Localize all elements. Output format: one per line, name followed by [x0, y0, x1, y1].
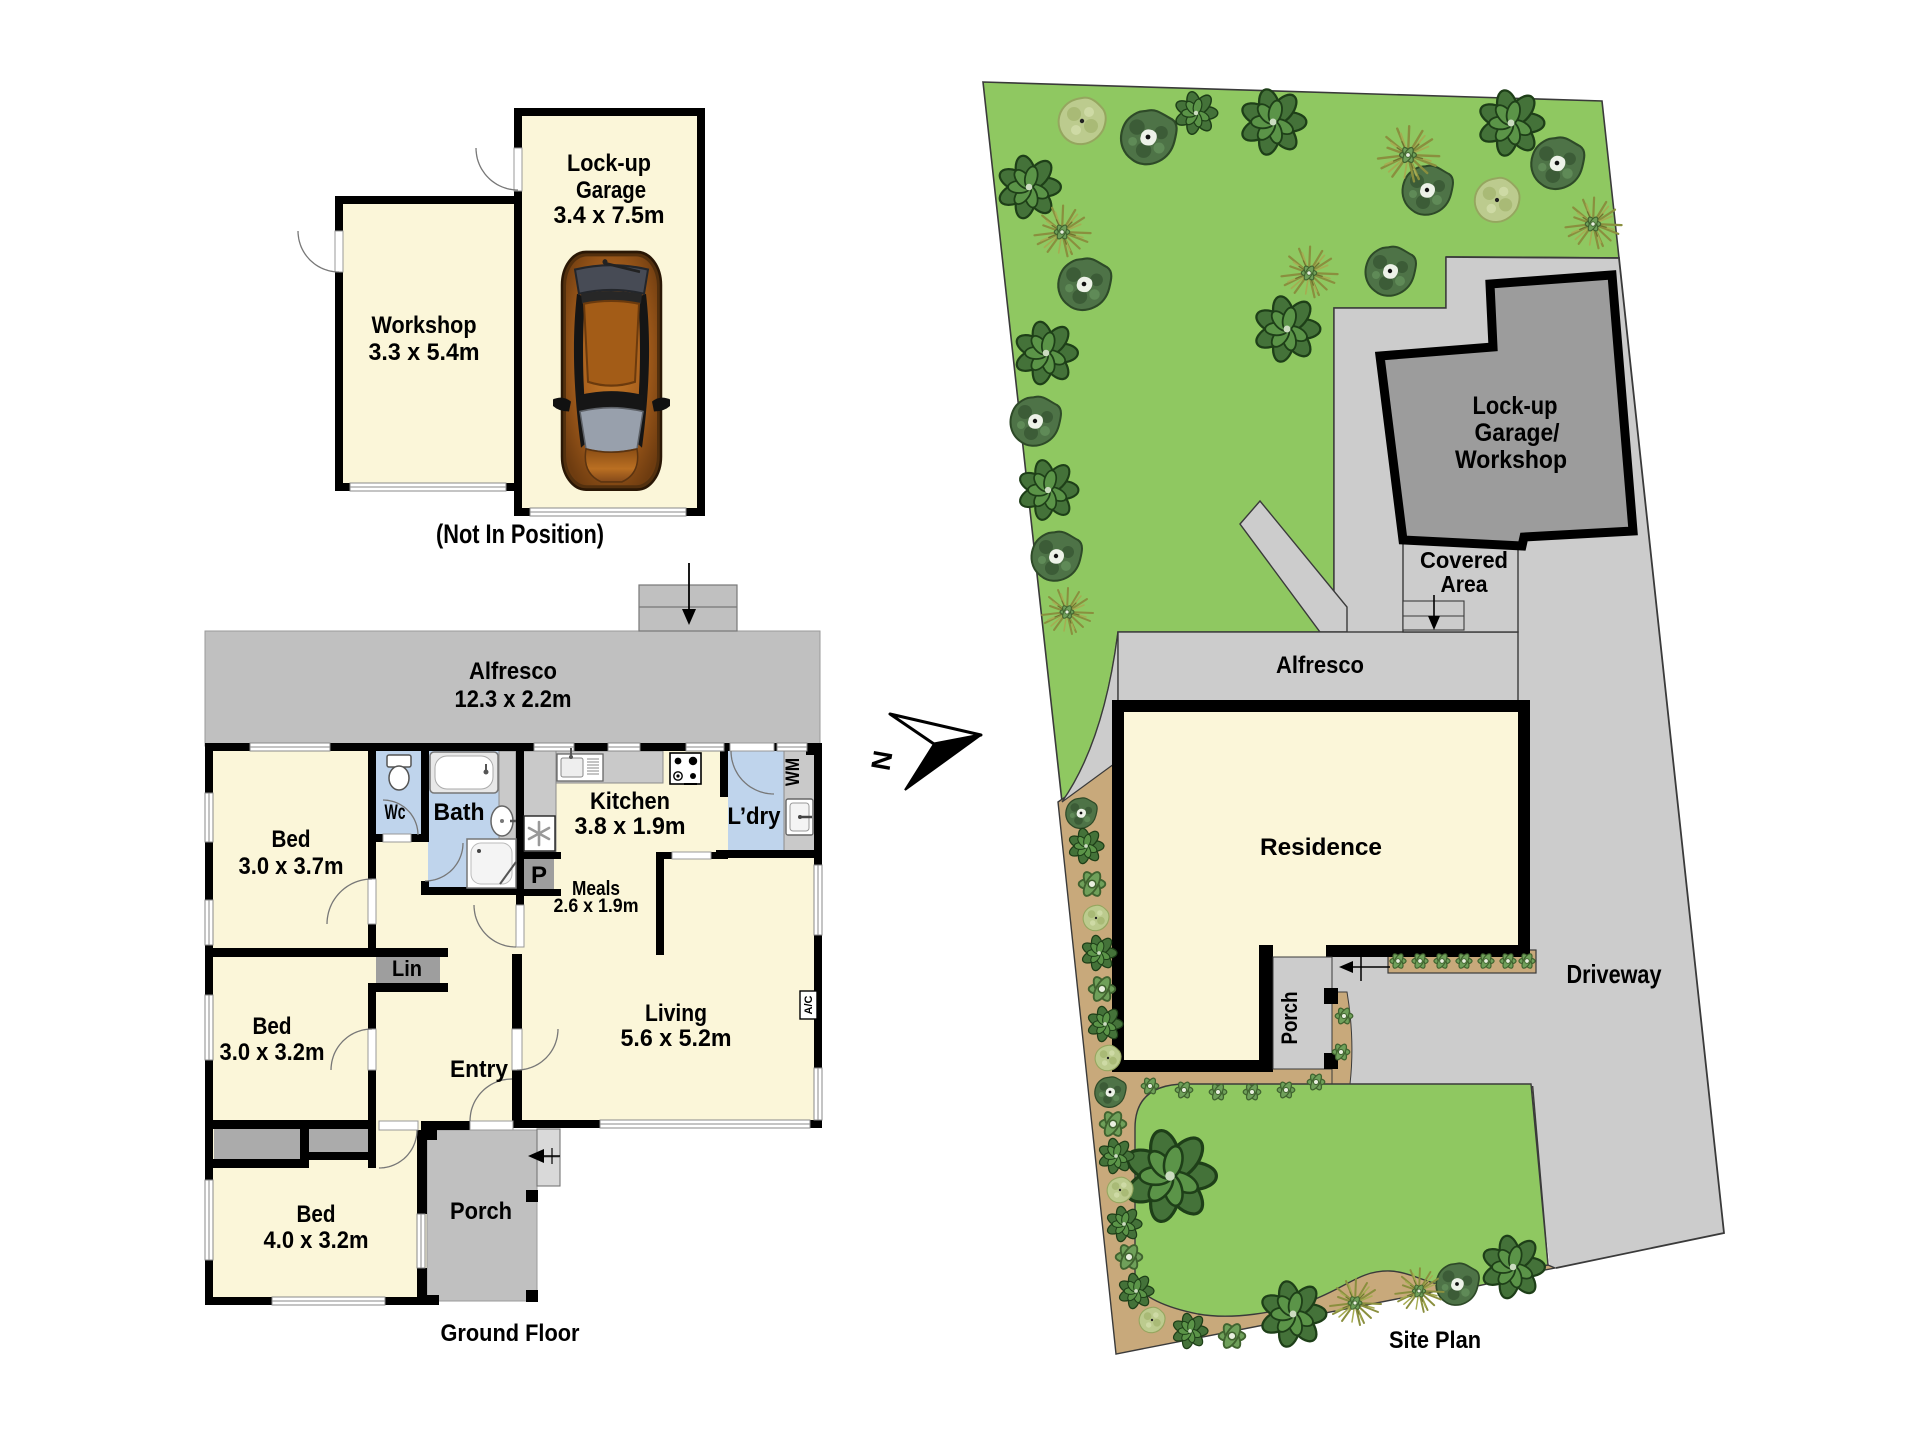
- svg-text:3.0 x 3.7m: 3.0 x 3.7m: [239, 853, 344, 880]
- svg-text:Living: Living: [645, 1000, 707, 1027]
- svg-text:3.0 x 3.2m: 3.0 x 3.2m: [220, 1039, 325, 1066]
- svg-text:Bed: Bed: [297, 1201, 336, 1228]
- svg-text:Bath: Bath: [434, 799, 485, 826]
- svg-text:3.8 x 1.9m: 3.8 x 1.9m: [575, 813, 686, 840]
- svg-text:L’dry: L’dry: [728, 803, 782, 830]
- svg-text:Porch: Porch: [450, 1198, 512, 1225]
- svg-text:A/C: A/C: [803, 995, 815, 1014]
- svg-text:(Not In Position): (Not In Position): [436, 519, 604, 549]
- svg-text:Covered: Covered: [1420, 547, 1508, 573]
- svg-text:Entry: Entry: [450, 1056, 509, 1083]
- svg-text:Bed: Bed: [253, 1013, 292, 1040]
- svg-text:Driveway: Driveway: [1567, 959, 1662, 989]
- svg-text:Residence: Residence: [1260, 834, 1382, 861]
- svg-text:3.3 x 5.4m: 3.3 x 5.4m: [369, 339, 480, 366]
- svg-text:Workshop: Workshop: [372, 312, 477, 339]
- svg-text:Bed: Bed: [272, 826, 311, 853]
- svg-text:Wc: Wc: [385, 801, 406, 824]
- svg-text:Porch: Porch: [1277, 992, 1302, 1045]
- svg-text:2.6 x 1.9m: 2.6 x 1.9m: [554, 896, 639, 917]
- svg-text:Site Plan: Site Plan: [1389, 1327, 1481, 1354]
- svg-text:Lock-up: Lock-up: [567, 150, 651, 177]
- svg-text:Ground Floor: Ground Floor: [441, 1320, 580, 1347]
- svg-text:Lock-up: Lock-up: [1473, 392, 1558, 420]
- svg-text:Garage: Garage: [576, 177, 646, 204]
- svg-text:Kitchen: Kitchen: [590, 788, 670, 815]
- svg-text:Lin: Lin: [392, 956, 422, 981]
- svg-text:4.0 x 3.2m: 4.0 x 3.2m: [264, 1227, 369, 1254]
- svg-text:WM: WM: [783, 758, 804, 786]
- svg-text:Alfresco: Alfresco: [1276, 652, 1364, 679]
- svg-text:P: P: [531, 862, 547, 889]
- svg-text:5.6 x 5.2m: 5.6 x 5.2m: [621, 1025, 732, 1052]
- svg-text:Workshop: Workshop: [1455, 446, 1567, 474]
- svg-text:Area: Area: [1441, 571, 1488, 597]
- svg-text:12.3 x 2.2m: 12.3 x 2.2m: [455, 686, 572, 713]
- svg-text:Garage/: Garage/: [1475, 419, 1560, 447]
- svg-text:Alfresco: Alfresco: [469, 658, 557, 685]
- svg-text:3.4 x 7.5m: 3.4 x 7.5m: [554, 202, 665, 229]
